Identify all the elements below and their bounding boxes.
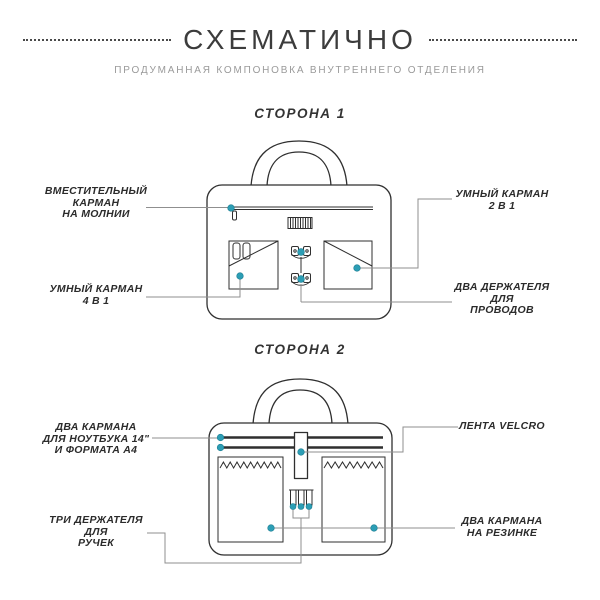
bag-handle-inner-icon	[267, 152, 331, 186]
title-rule-left	[23, 39, 171, 41]
label-line: 2 В 1	[454, 201, 550, 213]
infographic-page: СХЕМАТИЧНО ПРОДУМАННАЯ КОМПОНОВКА ВНУТРЕ…	[0, 0, 600, 600]
label-line: ДВА КАРМАНА	[34, 422, 158, 434]
label-laptop-pockets: ДВА КАРМАНА ДЛЯ НОУТБУКА 14" И ФОРМАТА А…	[34, 422, 158, 457]
side1-heading: СТОРОНА 1	[0, 106, 600, 121]
label-smart-pocket-4in1: УМНЫЙ КАРМАН 4 В 1	[40, 284, 152, 307]
bag-handle-outer-icon	[253, 379, 348, 424]
title-rule-right	[429, 39, 577, 41]
label-pen-holders: ТРИ ДЕРЖАТЕЛЯ ДЛЯ РУЧЕК	[40, 515, 152, 550]
label-wire-holders: ДВА ДЕРЖАТЕЛЯ ДЛЯ ПРОВОДОВ	[454, 282, 550, 317]
page-title: СХЕМАТИЧНО	[183, 24, 417, 56]
label-line: ВМЕСТИТЕЛЬНЫЙ	[40, 186, 152, 198]
page-subtitle: ПРОДУМАННАЯ КОМПОНОВКА ВНУТРЕННЕГО ОТДЕЛ…	[0, 65, 600, 76]
side2-heading: СТОРОНА 2	[0, 342, 600, 357]
label-zipper-pocket: ВМЕСТИТЕЛЬНЫЙ КАРМАН НА МОЛНИИ	[40, 186, 152, 221]
label-elastic-pockets: ДВА КАРМАНА НА РЕЗИНКЕ	[454, 516, 550, 539]
label-line: ДВА ДЕРЖАТЕЛЯ	[454, 282, 550, 294]
label-velcro: ЛЕНТА VELCRO	[454, 421, 550, 433]
label-smart-pocket-2in1: УМНЫЙ КАРМАН 2 В 1	[454, 189, 550, 212]
label-line: ДВА КАРМАНА	[454, 516, 550, 528]
title-row: СХЕМАТИЧНО	[0, 24, 600, 56]
label-line: УМНЫЙ КАРМАН	[40, 284, 152, 296]
label-line: И ФОРМАТА А4	[34, 445, 158, 457]
bag-handle-outer-icon	[251, 141, 347, 186]
label-line: 4 В 1	[40, 296, 152, 308]
label-line: ПРОВОДОВ	[454, 305, 550, 317]
header: СХЕМАТИЧНО ПРОДУМАННАЯ КОМПОНОВКА ВНУТРЕ…	[0, 24, 600, 76]
label-line: ТРИ ДЕРЖАТЕЛЯ	[40, 515, 152, 527]
label-line: НА МОЛНИИ	[40, 209, 152, 221]
label-line: УМНЫЙ КАРМАН	[454, 189, 550, 201]
label-line: НА РЕЗИНКЕ	[454, 528, 550, 540]
label-line: ЛЕНТА VELCRO	[454, 421, 550, 433]
bag-handle-inner-icon	[269, 390, 332, 424]
label-line: РУЧЕК	[40, 538, 152, 550]
